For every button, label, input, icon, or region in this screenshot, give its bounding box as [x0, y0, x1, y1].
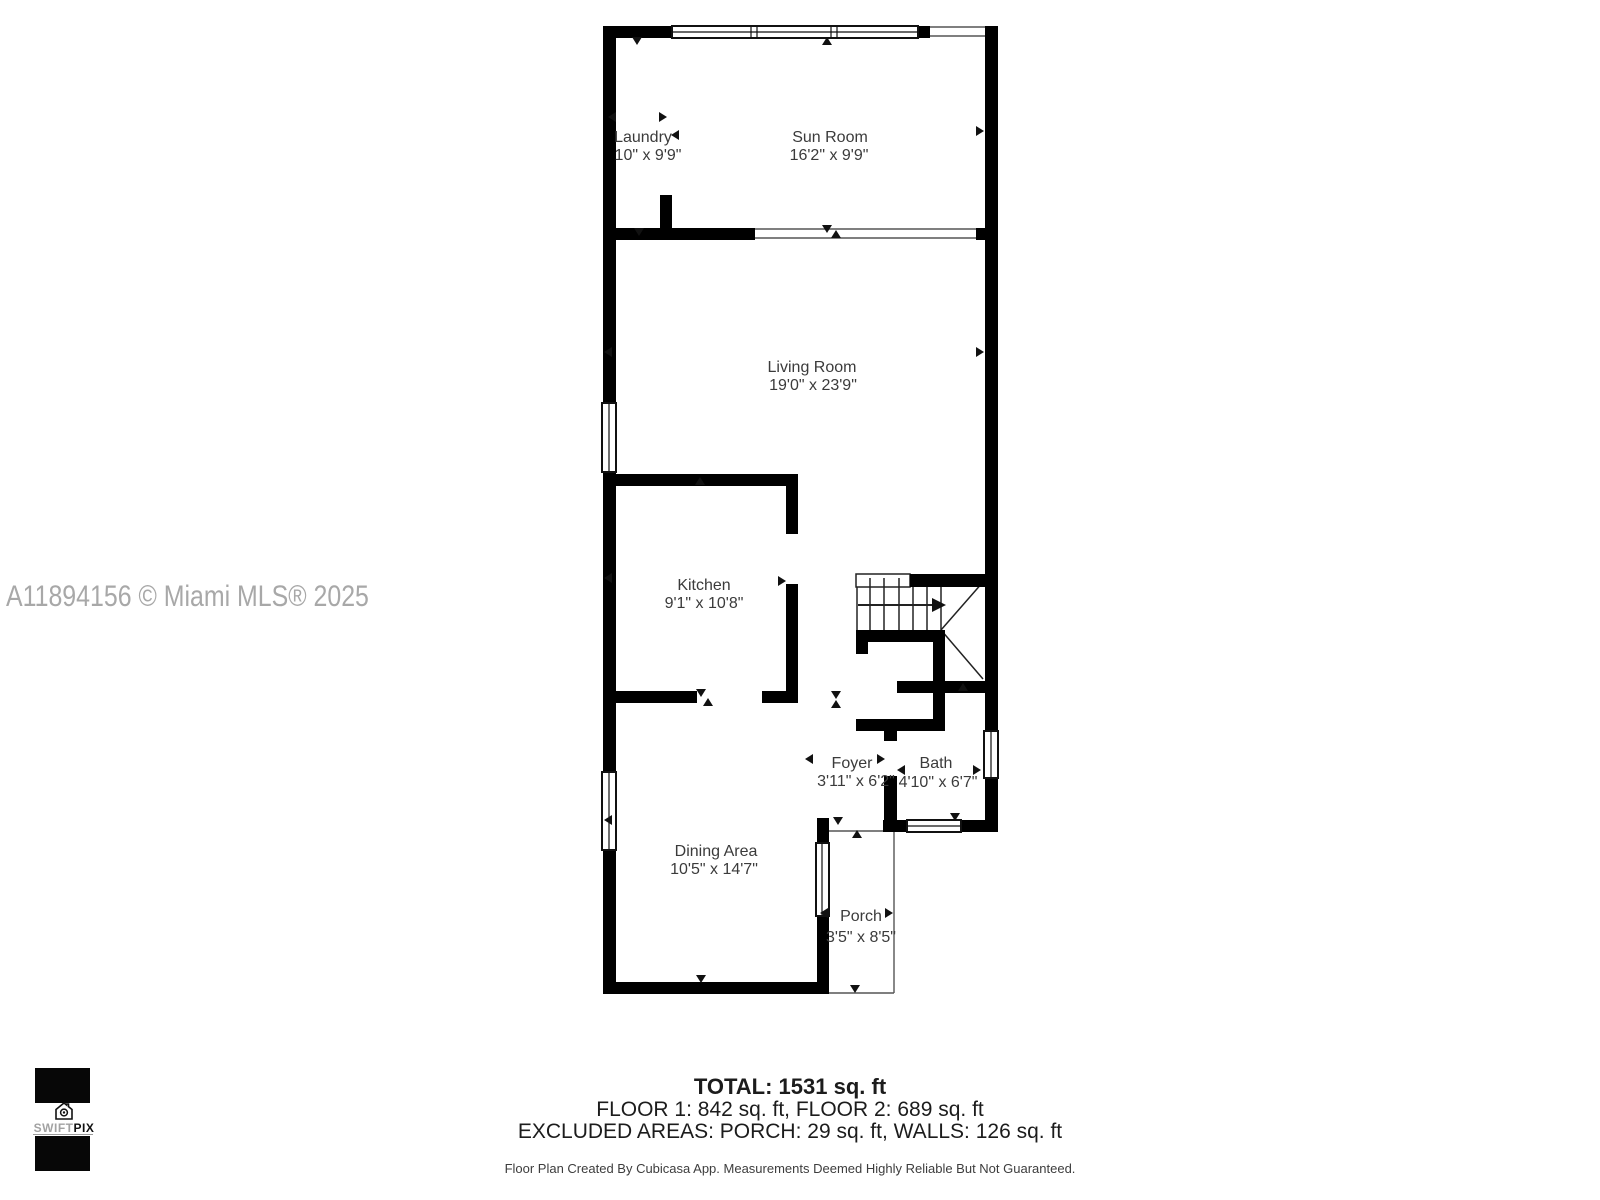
opening-marker [632, 37, 642, 45]
total-area-text: TOTAL: 1531 sq. ft [390, 1076, 1190, 1099]
floor-plan-drawing: Laundry 10" x 9'9" Sun Room 16'2" x 9'9"… [0, 0, 1600, 1200]
room-dims-porch: 3'5" x 8'5" [826, 929, 896, 946]
logo-divider [33, 1134, 93, 1135]
wall [817, 818, 829, 843]
stair-diagonal [941, 630, 983, 679]
room-dims-laundry: 10" x 9'9" [615, 147, 682, 164]
opening-marker [696, 975, 706, 983]
opening-marker [885, 908, 893, 918]
opening-marker [831, 230, 841, 238]
opening-marker [877, 754, 885, 764]
opening-marker [976, 347, 984, 357]
wall [918, 26, 930, 38]
wall [856, 719, 945, 731]
wall [856, 630, 868, 654]
wall [817, 916, 829, 994]
room-label-laundry: Laundry [614, 129, 672, 146]
staircase [856, 574, 983, 679]
wall [660, 195, 672, 240]
stair-top-strip [856, 574, 910, 587]
room-label-living-room: Living Room [768, 359, 857, 376]
opening-marker [976, 126, 984, 136]
wall [603, 982, 829, 994]
wall [883, 820, 907, 832]
logo-block-bottom [35, 1136, 90, 1171]
stair-diagonal [941, 582, 983, 630]
opening-lines [755, 27, 985, 238]
opening-marker [805, 754, 813, 764]
logo-brand-text: SWIFTPIX [28, 1121, 100, 1135]
opening-marker [831, 700, 841, 708]
window-sunroom-top [672, 26, 918, 38]
wall [603, 26, 616, 403]
room-label-sun-room: Sun Room [792, 129, 868, 146]
area-summary: TOTAL: 1531 sq. ft FLOOR 1: 842 sq. ft, … [390, 1076, 1190, 1144]
room-dims-sun-room: 16'2" x 9'9" [790, 147, 869, 164]
walls [603, 26, 998, 994]
window-porch-left [816, 843, 829, 916]
wall [786, 474, 798, 534]
window-dining-left [602, 772, 616, 850]
logo-brand-pix: PIX [73, 1121, 94, 1135]
wall [933, 630, 945, 731]
wall [985, 26, 998, 732]
logo-brand-swift: SWIFT [34, 1121, 74, 1135]
room-label-bath: Bath [920, 755, 953, 772]
stair-direction-arrowhead [932, 598, 946, 612]
excluded-areas-text: EXCLUDED AREAS: PORCH: 29 sq. ft, WALLS:… [390, 1121, 1190, 1144]
room-dims-living-room: 19'0" x 23'9" [769, 377, 857, 394]
wall [762, 691, 798, 703]
wall [856, 630, 941, 642]
wall [976, 228, 986, 240]
opening-marker [659, 112, 667, 122]
wall [897, 681, 998, 693]
room-label-porch: Porch [840, 908, 882, 925]
room-label-dining-area: Dining Area [675, 843, 758, 860]
floor-areas-text: FLOOR 1: 842 sq. ft, FLOOR 2: 689 sq. ft [390, 1099, 1190, 1122]
opening-marker [833, 817, 843, 825]
wall [603, 848, 616, 994]
wall [961, 820, 998, 832]
opening-marker [850, 985, 860, 993]
wall [603, 228, 755, 240]
room-dims-kitchen: 9'1" x 10'8" [665, 595, 744, 612]
disclaimer-text: Floor Plan Created By Cubicasa App. Meas… [390, 1161, 1190, 1176]
wall [786, 584, 798, 703]
opening-marker [696, 689, 706, 697]
room-dims-bath: 4'10" x 6'7" [899, 774, 978, 791]
logo-block-top [35, 1068, 90, 1103]
opening-marker [671, 130, 679, 140]
window-bath-bottom [907, 820, 961, 832]
room-label-kitchen: Kitchen [677, 577, 730, 594]
wall [884, 719, 897, 741]
wall [910, 574, 985, 587]
room-label-foyer: Foyer [832, 755, 874, 772]
room-dims-foyer: 3'11" x 6'2" [817, 773, 895, 790]
window-bath-right [984, 731, 998, 778]
room-dims-dining-area: 10'5" x 14'7" [670, 861, 758, 878]
house-camera-icon [54, 1102, 74, 1120]
opening-marker [778, 576, 786, 586]
floor-plan-page: A11894156 © Miami MLS® 2025 [0, 0, 1600, 1200]
wall [603, 691, 697, 703]
opening-marker [703, 698, 713, 706]
window-living-left [602, 403, 616, 472]
wall [603, 472, 616, 774]
opening-marker [831, 691, 841, 699]
